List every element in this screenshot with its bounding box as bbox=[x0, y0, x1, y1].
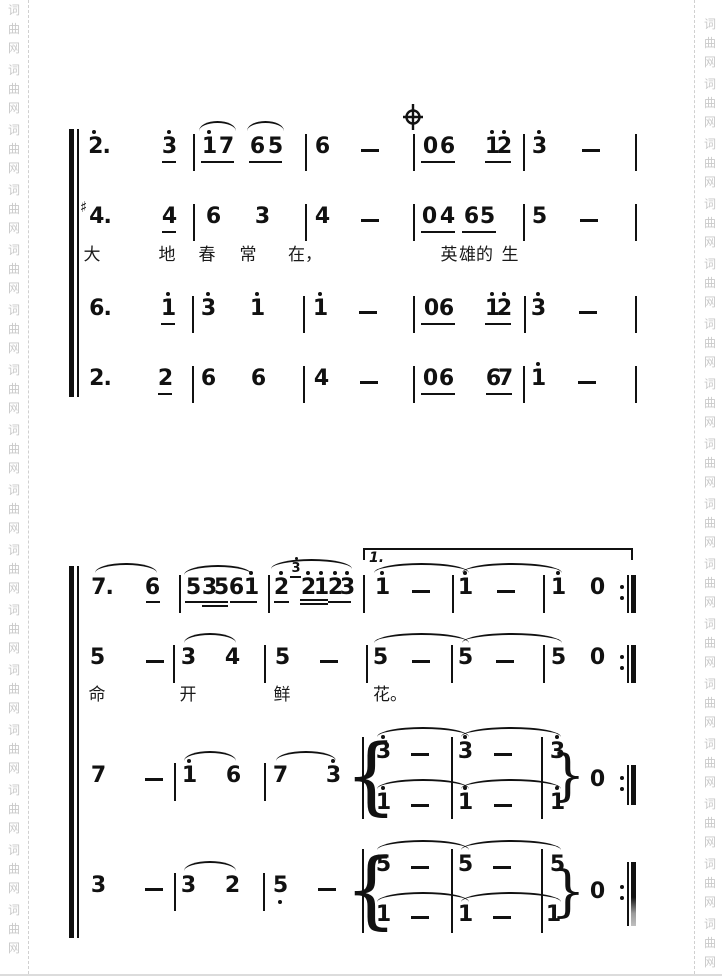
repeat-dot-icon bbox=[620, 787, 624, 791]
octave-dot bbox=[306, 571, 310, 575]
note: 3 bbox=[91, 875, 105, 897]
watermark-char: 词 bbox=[8, 904, 20, 916]
beam bbox=[158, 393, 172, 395]
watermark-char: 网 bbox=[704, 56, 716, 68]
lyric: 春 bbox=[199, 246, 216, 265]
held-note-dash bbox=[411, 916, 429, 919]
watermark-char: 网 bbox=[8, 282, 20, 294]
barline bbox=[69, 129, 74, 397]
note: 6 bbox=[226, 765, 240, 787]
octave-dot bbox=[333, 571, 337, 575]
octave-dot bbox=[536, 362, 540, 366]
watermark-char: 网 bbox=[704, 596, 716, 608]
note: 6 bbox=[206, 206, 220, 228]
octave-dot bbox=[502, 292, 506, 296]
lyric: 生 bbox=[502, 246, 519, 265]
lyric: 雄的 bbox=[459, 246, 493, 265]
watermark-char: 词 bbox=[8, 64, 20, 76]
note: 4 bbox=[315, 206, 329, 228]
barline bbox=[523, 366, 525, 403]
watermark-char: 曲 bbox=[704, 217, 716, 229]
note: 5 bbox=[268, 136, 282, 158]
barline bbox=[173, 645, 175, 683]
note: 6 bbox=[439, 368, 453, 390]
note: 2 bbox=[497, 298, 511, 320]
held-note-dash bbox=[579, 311, 597, 314]
beam bbox=[274, 601, 289, 603]
note: 3 bbox=[340, 577, 354, 599]
watermark-char: 网 bbox=[8, 42, 20, 54]
beam bbox=[485, 323, 511, 325]
note: 1 bbox=[458, 577, 472, 599]
barline bbox=[543, 645, 545, 683]
note: 3 bbox=[181, 647, 195, 669]
watermark-char: 网 bbox=[704, 656, 716, 668]
watermark-char: 曲 bbox=[8, 203, 20, 215]
note: 5 bbox=[551, 647, 565, 669]
repeat-thick-barline bbox=[631, 862, 636, 926]
watermark-char: 词 bbox=[704, 138, 716, 150]
slur-tie bbox=[374, 633, 469, 643]
note: 1 bbox=[250, 298, 264, 320]
volta-bracket bbox=[363, 548, 633, 560]
beam bbox=[300, 603, 328, 605]
watermark-char: 网 bbox=[704, 536, 716, 548]
repeat-thick-barline bbox=[631, 575, 636, 613]
repeat-dot-icon bbox=[620, 655, 624, 659]
barline bbox=[413, 366, 415, 403]
held-note-dash bbox=[497, 590, 515, 593]
watermark-char: 曲 bbox=[704, 277, 716, 289]
note: 0 bbox=[590, 647, 604, 669]
watermark-dashed-line bbox=[28, 0, 29, 974]
watermark-char: 曲 bbox=[704, 577, 716, 589]
watermark-char: 词 bbox=[704, 798, 716, 810]
held-note-dash bbox=[411, 804, 429, 807]
barline bbox=[268, 575, 270, 613]
watermark-char: 网 bbox=[704, 176, 716, 188]
held-note-dash bbox=[359, 311, 377, 314]
watermark-char: 词 bbox=[704, 858, 716, 870]
watermark-char: 曲 bbox=[8, 83, 20, 95]
watermark-char: 词 bbox=[704, 378, 716, 390]
note: 3 bbox=[376, 741, 390, 763]
barline bbox=[69, 566, 74, 938]
lyric: 开 bbox=[180, 686, 197, 705]
barline bbox=[174, 763, 176, 801]
sheet-page: 词曲网词曲网词曲网词曲网词曲网词曲网词曲网词曲网词曲网词曲网词曲网词曲网词曲网词… bbox=[0, 0, 722, 976]
watermark-char: 曲 bbox=[8, 923, 20, 935]
watermark-char: 曲 bbox=[704, 637, 716, 649]
watermark-char: 词 bbox=[704, 18, 716, 30]
held-note-dash bbox=[320, 660, 338, 663]
octave-dot bbox=[536, 292, 540, 296]
watermark-char: 曲 bbox=[704, 337, 716, 349]
watermark-char: 曲 bbox=[704, 757, 716, 769]
watermark-char: 词 bbox=[8, 124, 20, 136]
barline bbox=[543, 575, 545, 613]
held-note-dash bbox=[411, 866, 429, 869]
watermark-char: 网 bbox=[704, 296, 716, 308]
note: 3 bbox=[531, 298, 545, 320]
note: 3 bbox=[326, 765, 340, 787]
watermark-char: 词 bbox=[704, 558, 716, 570]
note: 5 bbox=[273, 875, 287, 897]
barline bbox=[635, 366, 637, 403]
note: 2 bbox=[497, 136, 511, 158]
note: 4 bbox=[440, 206, 454, 228]
held-note-dash bbox=[580, 219, 598, 222]
barline bbox=[264, 645, 266, 683]
note: 1 bbox=[314, 577, 328, 599]
note: 6 bbox=[201, 368, 215, 390]
beam bbox=[421, 323, 455, 325]
barline bbox=[363, 575, 365, 613]
watermark-char: 词 bbox=[704, 258, 716, 270]
slur-tie bbox=[271, 559, 352, 569]
watermark-char: 曲 bbox=[8, 23, 20, 35]
octave-dot bbox=[490, 292, 494, 296]
held-note-dash bbox=[496, 660, 514, 663]
note: 1 bbox=[313, 298, 327, 320]
held-note-dash bbox=[578, 381, 596, 384]
watermark-char: 网 bbox=[8, 822, 20, 834]
watermark-char: 曲 bbox=[8, 743, 20, 755]
watermark-char: 网 bbox=[8, 582, 20, 594]
watermark-char: 曲 bbox=[704, 937, 716, 949]
barline bbox=[193, 204, 195, 241]
octave-dot bbox=[255, 292, 259, 296]
note: 3 bbox=[255, 206, 269, 228]
watermark-char: 词 bbox=[704, 78, 716, 90]
barline bbox=[263, 873, 265, 911]
repeat-dot-icon bbox=[620, 666, 624, 670]
note: 6 bbox=[145, 577, 159, 599]
note: 4 bbox=[314, 368, 328, 390]
note: 3 bbox=[162, 136, 176, 158]
note: 6 bbox=[251, 368, 265, 390]
slur-tie bbox=[461, 727, 561, 737]
note: 2. bbox=[89, 368, 111, 390]
held-note-dash bbox=[494, 804, 512, 807]
held-note-dash bbox=[411, 753, 429, 756]
beam bbox=[161, 323, 175, 325]
barline bbox=[303, 296, 305, 333]
watermark-right-column: 词曲网词曲网词曲网词曲网词曲网词曲网词曲网词曲网词曲网词曲网词曲网词曲网词曲网词… bbox=[692, 0, 722, 974]
lyric: 英 bbox=[441, 246, 458, 265]
beam bbox=[485, 161, 511, 163]
watermark-char: 曲 bbox=[8, 623, 20, 635]
watermark-char: 曲 bbox=[8, 863, 20, 875]
watermark-char: 网 bbox=[704, 836, 716, 848]
barline bbox=[635, 204, 637, 241]
note: 5 bbox=[90, 647, 104, 669]
watermark-char: 网 bbox=[8, 102, 20, 114]
beam bbox=[230, 601, 257, 603]
held-note-dash bbox=[145, 888, 163, 891]
note: 7 bbox=[273, 765, 287, 787]
watermark-left-column: 词曲网词曲网词曲网词曲网词曲网词曲网词曲网词曲网词曲网词曲网词曲网词曲网词曲网词… bbox=[0, 0, 30, 974]
watermark-char: 曲 bbox=[8, 383, 20, 395]
barline bbox=[305, 134, 307, 171]
sharp-accidental-icon: ♯ bbox=[80, 200, 87, 215]
repeat-thin-barline bbox=[627, 862, 629, 926]
note: 6 bbox=[315, 136, 329, 158]
watermark-char: 词 bbox=[8, 184, 20, 196]
watermark-char: 网 bbox=[704, 236, 716, 248]
watermark-char: 网 bbox=[8, 762, 20, 774]
barline bbox=[541, 737, 543, 819]
chord-brace: } bbox=[551, 746, 586, 804]
held-note-dash bbox=[412, 660, 430, 663]
barline bbox=[452, 575, 454, 613]
watermark-char: 网 bbox=[8, 222, 20, 234]
note: 2 bbox=[225, 875, 239, 897]
note: 7 bbox=[498, 368, 512, 390]
octave-dot bbox=[345, 571, 349, 575]
watermark-char: 词 bbox=[8, 544, 20, 556]
watermark-char: 曲 bbox=[8, 143, 20, 155]
note: 1 bbox=[531, 368, 545, 390]
barline bbox=[193, 134, 195, 171]
repeat-dot-icon bbox=[620, 585, 624, 589]
note: 0 bbox=[423, 368, 437, 390]
repeat-thin-barline bbox=[627, 645, 629, 683]
watermark-char: 词 bbox=[704, 498, 716, 510]
watermark-char: 曲 bbox=[8, 323, 20, 335]
octave-dot bbox=[167, 130, 171, 134]
watermark-char: 曲 bbox=[8, 803, 20, 815]
held-note-dash bbox=[146, 660, 164, 663]
beam bbox=[300, 599, 328, 601]
lyric: 常 bbox=[240, 246, 257, 265]
note: 1 bbox=[161, 298, 175, 320]
note: 6 bbox=[439, 298, 453, 320]
watermark-char: 网 bbox=[704, 476, 716, 488]
repeat-thick-barline bbox=[631, 645, 636, 683]
watermark-char: 词 bbox=[8, 244, 20, 256]
watermark-char: 词 bbox=[8, 664, 20, 676]
note: 6 bbox=[229, 577, 243, 599]
beam bbox=[202, 605, 228, 607]
beam bbox=[486, 393, 512, 395]
note: 3 bbox=[181, 875, 195, 897]
watermark-char: 网 bbox=[8, 402, 20, 414]
note: 1 bbox=[375, 577, 389, 599]
held-note-dash bbox=[493, 916, 511, 919]
watermark-char: 词 bbox=[8, 604, 20, 616]
slur-tie bbox=[184, 633, 236, 643]
octave-dot bbox=[502, 130, 506, 134]
watermark-char: 词 bbox=[704, 918, 716, 930]
beam bbox=[421, 231, 455, 233]
octave-dot bbox=[490, 130, 494, 134]
held-note-dash bbox=[318, 888, 336, 891]
note: 5 bbox=[458, 854, 472, 876]
lyric: 命 bbox=[89, 686, 106, 705]
beam bbox=[249, 161, 282, 163]
lyric: 大 bbox=[84, 246, 101, 265]
note: 7 bbox=[91, 765, 105, 787]
watermark-char: 网 bbox=[704, 416, 716, 428]
held-note-dash bbox=[361, 149, 379, 152]
watermark-char: 曲 bbox=[8, 503, 20, 515]
note: 5 bbox=[376, 854, 390, 876]
barline bbox=[451, 737, 453, 819]
watermark-char: 网 bbox=[8, 702, 20, 714]
note: 1 bbox=[244, 577, 258, 599]
slur-tie bbox=[461, 779, 561, 789]
watermark-char: 词 bbox=[704, 738, 716, 750]
barline bbox=[77, 129, 79, 397]
beam bbox=[146, 601, 160, 603]
watermark-char: 词 bbox=[8, 364, 20, 376]
slur-tie bbox=[184, 565, 252, 575]
watermark-char: 词 bbox=[8, 4, 20, 16]
watermark-char: 词 bbox=[704, 678, 716, 690]
beam bbox=[185, 601, 228, 603]
watermark-char: 曲 bbox=[8, 683, 20, 695]
barline bbox=[635, 134, 637, 171]
barline bbox=[524, 296, 526, 333]
watermark-char: 网 bbox=[704, 356, 716, 368]
watermark-char: 曲 bbox=[8, 563, 20, 575]
note: 5 bbox=[186, 577, 200, 599]
watermark-char: 词 bbox=[704, 618, 716, 630]
lyric: 在， bbox=[288, 246, 322, 265]
watermark-char: 曲 bbox=[704, 37, 716, 49]
repeat-dot-icon bbox=[620, 885, 624, 889]
barline bbox=[541, 849, 543, 933]
note: 6 bbox=[250, 136, 264, 158]
barline bbox=[77, 566, 79, 938]
watermark-char: 词 bbox=[704, 318, 716, 330]
watermark-char: 词 bbox=[8, 304, 20, 316]
watermark-char: 网 bbox=[8, 942, 20, 954]
held-note-dash bbox=[360, 381, 378, 384]
barline bbox=[303, 366, 305, 403]
note: 0 bbox=[422, 206, 436, 228]
lyric: 鲜 bbox=[274, 686, 291, 705]
repeat-thin-barline bbox=[627, 575, 629, 613]
repeat-thin-barline bbox=[627, 765, 629, 805]
slur-tie bbox=[184, 751, 236, 761]
octave-dot bbox=[319, 571, 323, 575]
barline bbox=[174, 873, 176, 911]
note: 1 bbox=[458, 904, 472, 926]
note: 4. bbox=[89, 206, 111, 228]
watermark-char: 网 bbox=[704, 956, 716, 968]
note: 1 bbox=[202, 136, 216, 158]
beam bbox=[201, 161, 234, 163]
slur-tie bbox=[184, 861, 236, 871]
note: 5 bbox=[480, 206, 494, 228]
barline bbox=[413, 296, 415, 333]
octave-dot bbox=[537, 130, 541, 134]
watermark-char: 网 bbox=[704, 716, 716, 728]
watermark-char: 网 bbox=[8, 882, 20, 894]
note: 5 bbox=[373, 647, 387, 669]
beam bbox=[421, 393, 455, 395]
watermark-char: 词 bbox=[8, 784, 20, 796]
watermark-char: 曲 bbox=[704, 817, 716, 829]
volta-label: 1. bbox=[369, 551, 384, 565]
watermark-dashed-line bbox=[694, 0, 695, 974]
watermark-char: 网 bbox=[8, 342, 20, 354]
note: 0 bbox=[424, 298, 438, 320]
slur-tie bbox=[462, 633, 562, 643]
note: 1 bbox=[458, 792, 472, 814]
slur-tie bbox=[199, 121, 236, 131]
held-note-dash bbox=[494, 753, 512, 756]
held-note-dash bbox=[493, 866, 511, 869]
octave-dot bbox=[206, 292, 210, 296]
beam bbox=[328, 601, 351, 603]
note: 1 bbox=[551, 577, 565, 599]
note: 3 bbox=[201, 298, 215, 320]
watermark-char: 网 bbox=[8, 642, 20, 654]
note: 7. bbox=[91, 577, 113, 599]
held-note-dash bbox=[582, 149, 600, 152]
beam bbox=[421, 161, 455, 163]
beam bbox=[162, 161, 176, 163]
note: 6 bbox=[440, 136, 454, 158]
note: 7 bbox=[219, 136, 233, 158]
slur-tie bbox=[461, 892, 561, 902]
held-note-dash bbox=[412, 590, 430, 593]
note: 0 bbox=[423, 136, 437, 158]
note: 3 bbox=[458, 741, 472, 763]
note: 2. bbox=[88, 136, 110, 158]
note: 4 bbox=[162, 206, 176, 228]
watermark-char: 曲 bbox=[8, 263, 20, 275]
note: 4 bbox=[225, 647, 239, 669]
watermark-char: 词 bbox=[704, 438, 716, 450]
octave-dot bbox=[166, 292, 170, 296]
note: 0 bbox=[590, 881, 604, 903]
repeat-dot-icon bbox=[620, 896, 624, 900]
beam bbox=[462, 231, 496, 233]
watermark-char: 词 bbox=[8, 484, 20, 496]
slur-tie bbox=[461, 840, 561, 850]
note: 5 bbox=[275, 647, 289, 669]
slur-tie bbox=[462, 563, 562, 573]
coda-icon bbox=[400, 103, 426, 135]
note: 0 bbox=[590, 577, 604, 599]
slur-tie bbox=[374, 563, 469, 573]
watermark-char: 网 bbox=[8, 462, 20, 474]
chord-brace: } bbox=[551, 862, 586, 920]
note: 1 bbox=[376, 904, 390, 926]
watermark-char: 网 bbox=[704, 776, 716, 788]
note: 2 bbox=[158, 368, 172, 390]
barline bbox=[366, 645, 368, 683]
watermark-char: 网 bbox=[704, 896, 716, 908]
watermark-char: 网 bbox=[704, 116, 716, 128]
watermark-char: 网 bbox=[8, 162, 20, 174]
watermark-char: 曲 bbox=[704, 877, 716, 889]
repeat-thick-barline bbox=[631, 765, 636, 805]
watermark-char: 曲 bbox=[704, 97, 716, 109]
lyric: 花。 bbox=[373, 686, 407, 705]
watermark-char: 曲 bbox=[704, 157, 716, 169]
note: 5 bbox=[214, 577, 228, 599]
watermark-char: 曲 bbox=[8, 443, 20, 455]
watermark-char: 词 bbox=[8, 424, 20, 436]
watermark-char: 曲 bbox=[704, 517, 716, 529]
barline bbox=[192, 296, 194, 333]
octave-dot bbox=[92, 130, 96, 134]
